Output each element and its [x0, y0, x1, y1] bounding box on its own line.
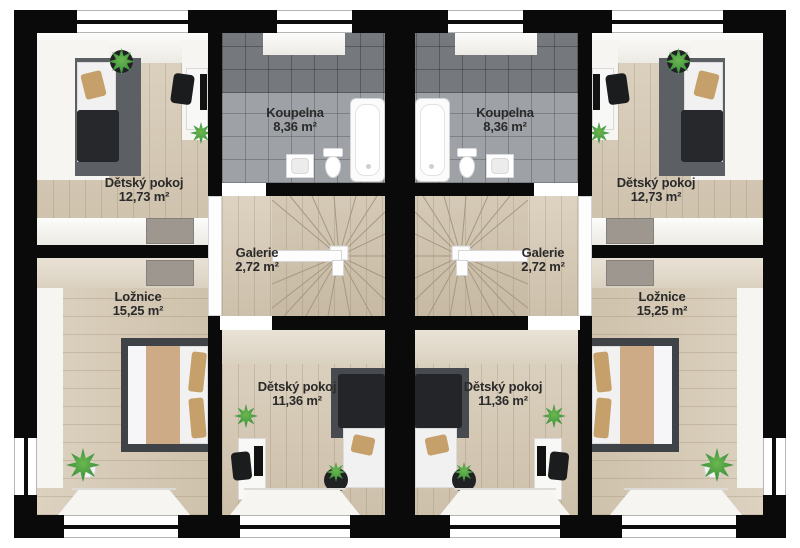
- monitor: [254, 446, 263, 476]
- bedroom-white-strip: [37, 288, 63, 488]
- floor-plan: Dětský pokoj 12,73 m² Koupelna 8,36 m² G…: [0, 0, 800, 548]
- room-label-galerie: Galerie 2,72 m²: [468, 246, 618, 274]
- stair-railing-return: [456, 260, 468, 276]
- room-label-detsky-pokoj-dolni: Dětský pokoj 11,36 m²: [222, 380, 372, 408]
- bed-blanket: [620, 346, 654, 444]
- room-name: Dětský pokoj: [222, 380, 372, 394]
- door-opening: [534, 183, 578, 196]
- room-label-loznice: Ložnice 15,25 m²: [587, 290, 737, 318]
- child-room-bottom-band: [415, 330, 578, 364]
- monitor: [200, 74, 207, 110]
- room-name: Galerie: [468, 246, 618, 260]
- room-area: 2,72 m²: [182, 260, 332, 274]
- room-label-galerie: Galerie 2,72 m²: [182, 246, 332, 274]
- bathroom-window-sill: [263, 33, 345, 55]
- window-recess: [440, 489, 570, 515]
- room-label-loznice: Ložnice 15,25 m²: [63, 290, 213, 318]
- window: [14, 438, 37, 495]
- room-name: Dětský pokoj: [581, 176, 731, 190]
- room-name: Koupelna: [220, 106, 370, 120]
- wall-interior-vertical-lower: [208, 330, 222, 515]
- window: [277, 10, 352, 33]
- child-room-bottom-band: [222, 330, 385, 364]
- office-chair: [548, 451, 570, 481]
- window: [612, 10, 723, 33]
- bed-sheet: [654, 346, 672, 444]
- bed-duvet: [77, 110, 119, 162]
- plant: [454, 462, 474, 482]
- room-area: 8,36 m²: [220, 120, 370, 134]
- room-name: Ložnice: [587, 290, 737, 304]
- office-chair: [170, 73, 195, 106]
- office-chair: [605, 73, 630, 106]
- room-area: 15,25 m²: [63, 304, 213, 318]
- bed-blanket: [146, 346, 180, 444]
- window-recess: [230, 489, 360, 515]
- wall-party-center: [385, 10, 400, 538]
- door-opening: [222, 183, 266, 196]
- room-area: 12,73 m²: [69, 190, 219, 204]
- window: [622, 515, 736, 538]
- plant: [326, 462, 346, 482]
- window-recess: [58, 489, 190, 515]
- room-area: 2,72 m²: [468, 260, 618, 274]
- window-sill-line: [454, 488, 556, 490]
- window: [448, 10, 523, 33]
- room-area: 15,25 m²: [587, 304, 737, 318]
- room-label-detsky-pokoj-horni: Dětský pokoj 12,73 m²: [69, 176, 219, 204]
- room-area: 11,36 m²: [222, 394, 372, 408]
- wall-interior-vertical-lower: [578, 330, 592, 515]
- room-label-detsky-pokoj-dolni: Dětský pokoj 11,36 m²: [428, 380, 578, 408]
- room-name: Dětský pokoj: [69, 176, 219, 190]
- room-area: 12,73 m²: [581, 190, 731, 204]
- window-recess: [610, 489, 742, 515]
- room-name: Ložnice: [63, 290, 213, 304]
- monitor: [593, 74, 600, 110]
- stair-railing-return: [332, 260, 344, 276]
- unit-right: Dětský pokoj 12,73 m² Koupelna 8,36 m² G…: [400, 10, 786, 538]
- window-sill-line: [244, 488, 346, 490]
- bathroom-window-sill: [455, 33, 537, 55]
- wall-interior-vertical-upper: [578, 33, 592, 183]
- window: [64, 515, 178, 538]
- room-area: 8,36 m²: [430, 120, 580, 134]
- window-sill-line: [72, 488, 176, 490]
- window-sill-line: [624, 488, 728, 490]
- room-label-koupelna: Koupelna 8,36 m²: [430, 106, 580, 134]
- sink-bowl: [491, 158, 509, 174]
- window: [240, 515, 350, 538]
- door-opening: [528, 316, 580, 330]
- bed-sheet: [128, 346, 146, 444]
- wall-party-center: [400, 10, 415, 538]
- door-opening: [220, 316, 272, 330]
- bed-duvet: [681, 110, 723, 162]
- window: [450, 515, 560, 538]
- room-name: Dětský pokoj: [428, 380, 578, 394]
- window: [77, 10, 188, 33]
- room-area: 11,36 m²: [428, 394, 578, 408]
- room-label-detsky-pokoj-horni: Dětský pokoj 12,73 m²: [581, 176, 731, 204]
- unit-left: Dětský pokoj 12,73 m² Koupelna 8,36 m² G…: [14, 10, 400, 538]
- office-chair: [231, 451, 253, 481]
- bedroom-white-strip: [737, 288, 763, 488]
- window: [763, 438, 786, 495]
- wardrobe: [146, 218, 194, 244]
- wardrobe: [606, 218, 654, 244]
- monitor: [537, 446, 546, 476]
- room-label-koupelna: Koupelna 8,36 m²: [220, 106, 370, 134]
- sink-bowl: [291, 158, 309, 174]
- room-name: Koupelna: [430, 106, 580, 120]
- room-name: Galerie: [182, 246, 332, 260]
